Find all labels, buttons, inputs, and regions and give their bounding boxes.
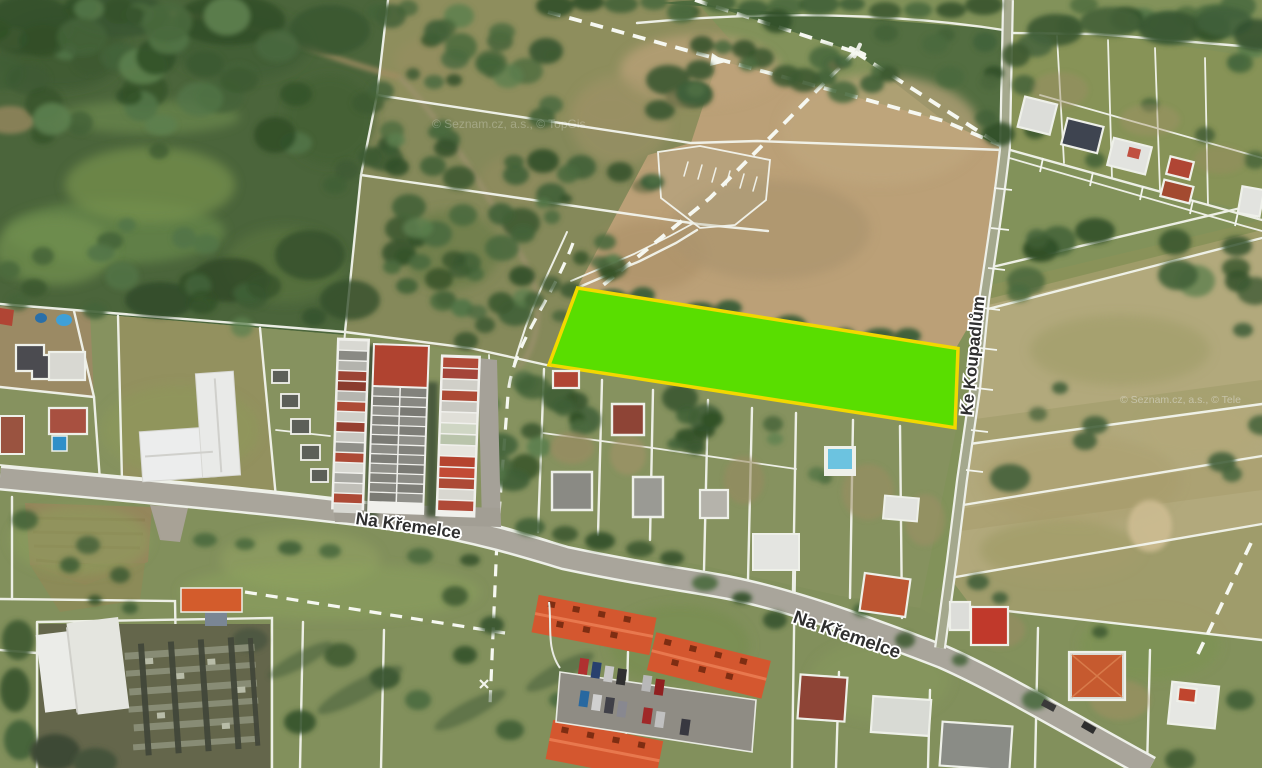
svg-text:© Seznam.cz, a.s., © Tele: © Seznam.cz, a.s., © Tele — [1120, 394, 1241, 406]
svg-text:© Seznam.cz, a.s., © TopGis: © Seznam.cz, a.s., © TopGis — [432, 117, 586, 131]
